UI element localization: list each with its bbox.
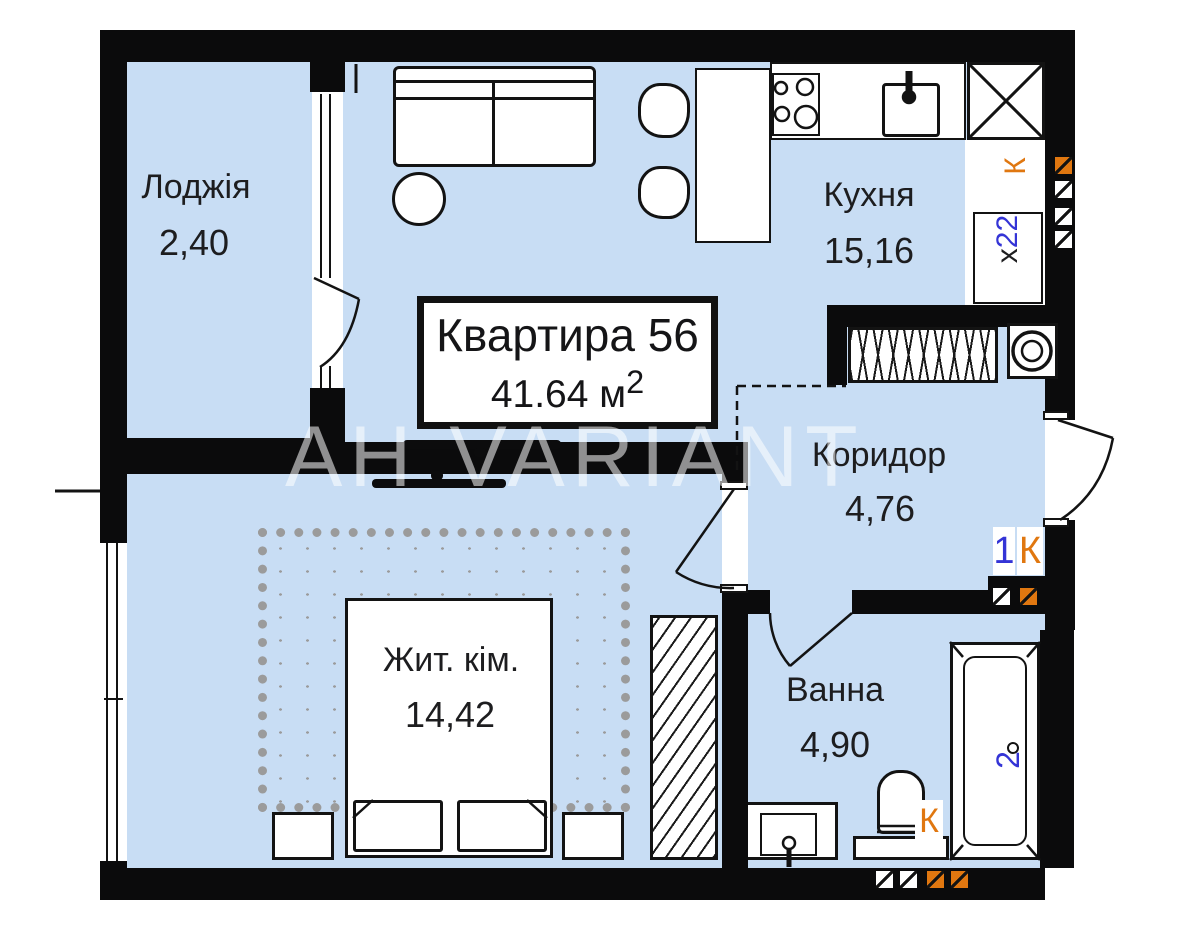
wall-marker-orange <box>951 871 968 888</box>
loggia-window <box>312 92 343 388</box>
bedroom-door-threshold <box>720 584 748 593</box>
room-label-living: Жит. кім. <box>383 641 519 680</box>
bath-label-k: К <box>915 800 943 842</box>
room-label-bath: Ванна <box>786 671 884 710</box>
wall-right-bathroom <box>1040 630 1074 868</box>
agency-watermark: АН VARIANT <box>285 408 1145 507</box>
stove <box>772 73 820 136</box>
dining-chair <box>638 166 690 219</box>
nightstand <box>562 812 624 860</box>
nightstand <box>272 812 334 860</box>
wall-right-corridor <box>1045 520 1075 630</box>
kitchen-sink <box>882 83 940 137</box>
room-area-loggia: 2,40 <box>159 222 229 264</box>
wall-hall-nub <box>827 305 847 385</box>
entry-label-k: К <box>1017 527 1043 575</box>
room-area-bath: 4,90 <box>800 724 870 766</box>
bedroom-window-frame-line <box>106 543 108 861</box>
entry-door-threshold <box>1043 518 1069 527</box>
bath-sink-basin <box>760 813 817 856</box>
duct-label: х22 <box>991 199 1025 279</box>
shaft-box <box>967 62 1045 140</box>
wall-marker <box>1055 181 1072 198</box>
wall-top <box>100 30 1075 62</box>
riser-label-k: К <box>1000 146 1032 186</box>
tub-label-2: 2 <box>990 745 1026 775</box>
wall-corridor-bath-left <box>722 590 770 614</box>
sofa-divider-line <box>492 80 495 166</box>
loggia-window-frame-line <box>320 366 322 388</box>
room-label-kitchen: Кухня <box>824 176 915 215</box>
bedroom-window-frame-line <box>116 543 118 861</box>
room-area-kitchen: 15,16 <box>824 230 914 272</box>
coat-rack <box>848 327 998 383</box>
wall-marker <box>876 871 893 888</box>
coffee-table <box>392 172 446 226</box>
wall-marker <box>900 871 917 888</box>
room-label-loggia: Лоджія <box>141 168 250 207</box>
dining-chair <box>638 83 690 138</box>
loggia-window-frame-line <box>329 94 331 278</box>
dining-table <box>695 68 771 243</box>
loggia-window-frame-line <box>329 366 331 388</box>
washing-machine <box>1007 323 1058 379</box>
wall-marker-orange <box>1055 157 1072 174</box>
bedroom-window <box>100 543 127 861</box>
wall-marker-orange <box>1020 588 1037 605</box>
room-area-living: 14,42 <box>405 694 495 736</box>
wall-marker <box>1055 231 1072 248</box>
wall-loggia-divider-top <box>310 62 345 92</box>
wardrobe <box>650 615 718 860</box>
wall-marker-orange <box>927 871 944 888</box>
bed-pillow <box>353 800 443 852</box>
apartment-title: Квартира 56 <box>436 308 699 362</box>
floor-plan: Квартира 56 41.64 м2 Лоджія 2,40 Кухня 1… <box>0 0 1186 949</box>
wall-marker <box>993 588 1010 605</box>
area-superscript: 2 <box>626 364 644 400</box>
bed-pillow <box>457 800 547 852</box>
wall-marker <box>1055 208 1072 225</box>
loggia-window-frame-line <box>320 94 322 278</box>
entry-label-1: 1 <box>993 527 1015 575</box>
